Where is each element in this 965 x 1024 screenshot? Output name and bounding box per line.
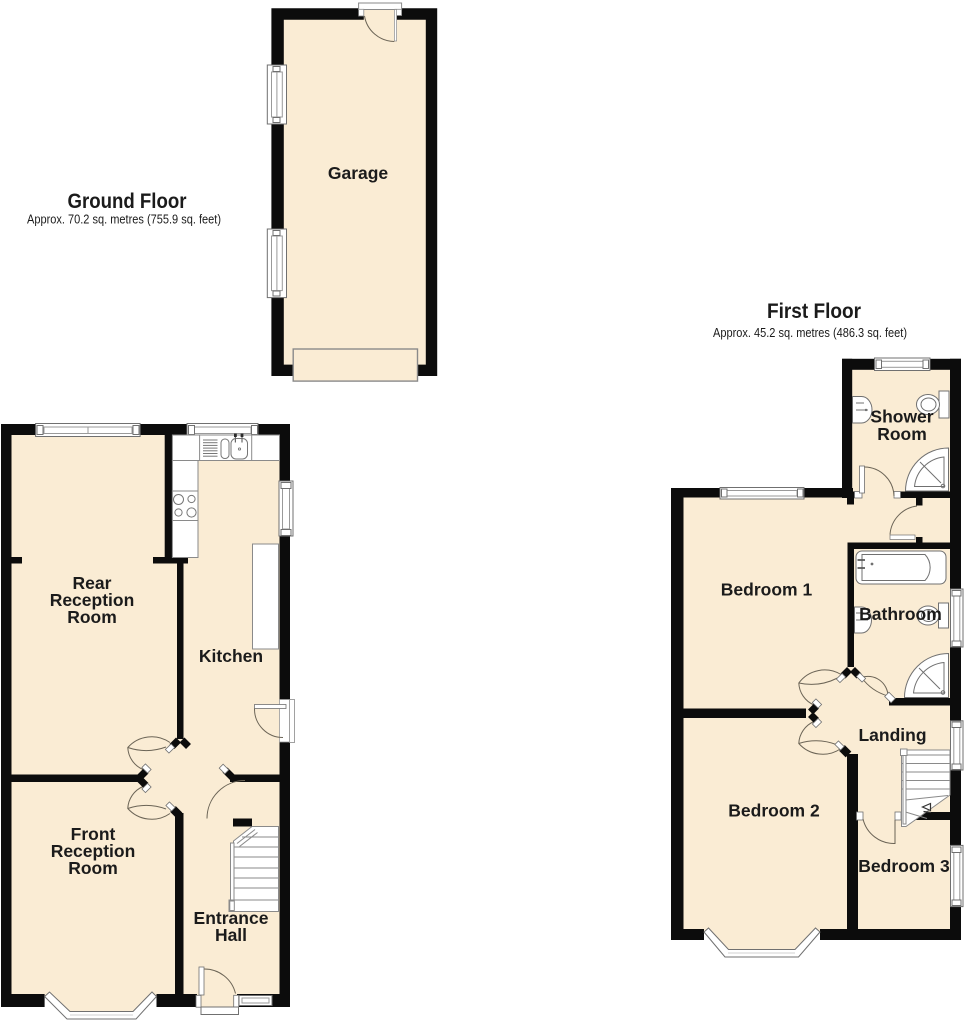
svg-text:Bathroom: Bathroom xyxy=(859,604,942,624)
svg-text:Kitchen: Kitchen xyxy=(199,646,263,666)
svg-text:Bedroom 2: Bedroom 2 xyxy=(728,801,820,821)
svg-text:Approx. 70.2 sq. metres (755.9: Approx. 70.2 sq. metres (755.9 sq. feet) xyxy=(27,212,221,227)
svg-text:Bedroom 3: Bedroom 3 xyxy=(858,856,950,876)
svg-text:Garage: Garage xyxy=(328,163,389,183)
svg-text:Room: Room xyxy=(67,607,117,627)
svg-text:Approx. 45.2 sq. metres (486.3: Approx. 45.2 sq. metres (486.3 sq. feet) xyxy=(713,325,907,340)
svg-text:Bedroom 1: Bedroom 1 xyxy=(721,580,813,600)
svg-text:Room: Room xyxy=(877,424,927,444)
svg-text:Room: Room xyxy=(68,858,118,878)
svg-text:Ground Floor: Ground Floor xyxy=(68,189,188,213)
svg-text:First Floor: First Floor xyxy=(767,299,862,323)
svg-text:Hall: Hall xyxy=(215,925,247,945)
svg-text:Landing: Landing xyxy=(858,725,926,745)
